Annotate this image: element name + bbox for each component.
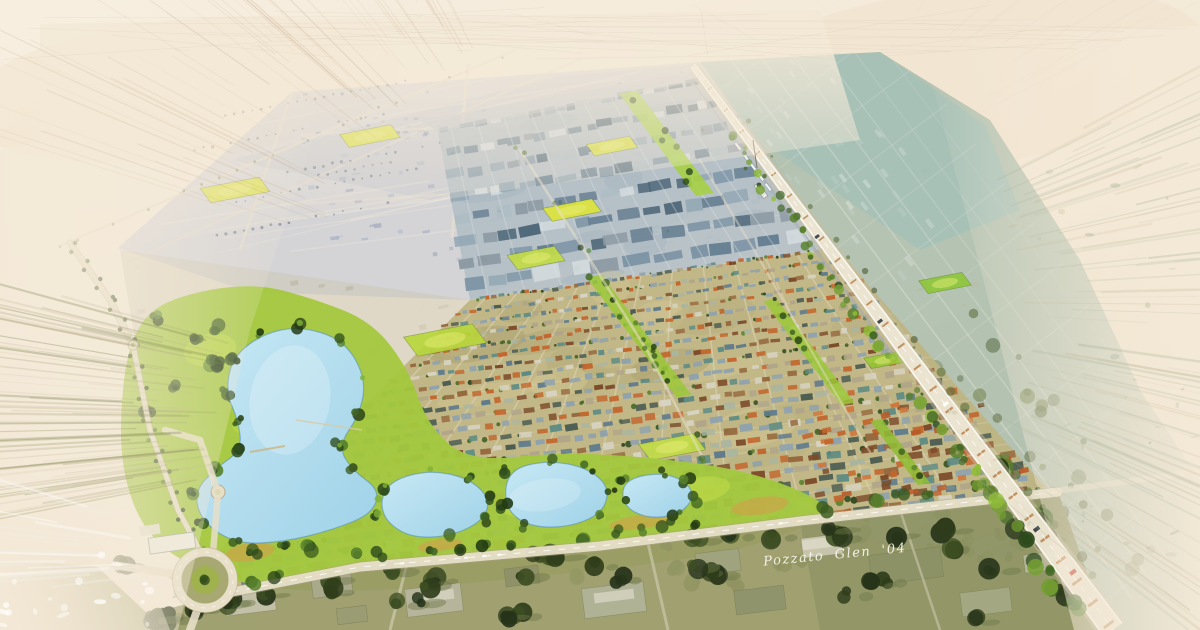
- aerial-masterplan-illustration: Pozzato Glen '04: [0, 0, 1200, 630]
